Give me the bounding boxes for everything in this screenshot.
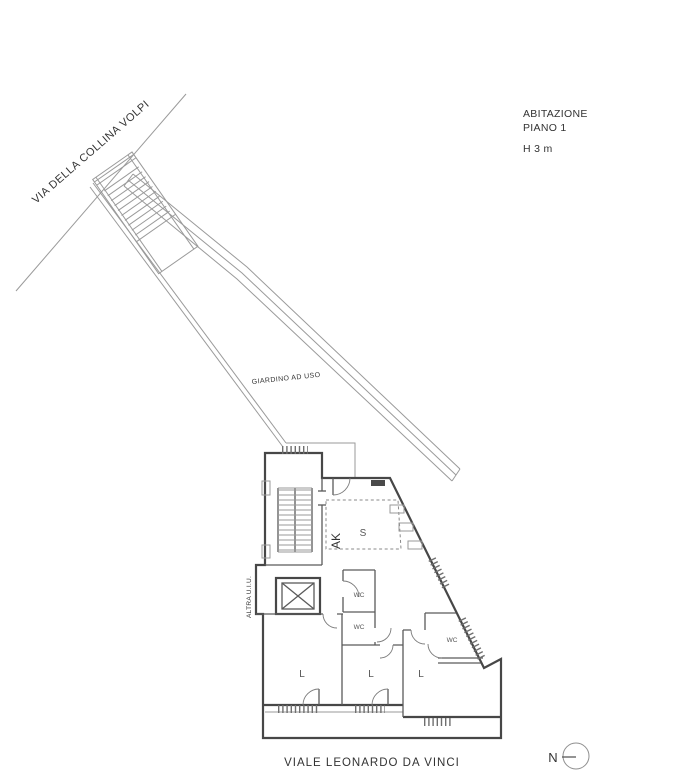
north-label: N (548, 750, 557, 765)
north-circle-icon (563, 743, 589, 769)
elevator-shaft (276, 578, 320, 614)
north-indicator: N (548, 743, 589, 769)
wc-label-1: WC (354, 592, 365, 599)
kitchenette-label: AK (329, 533, 343, 549)
balcony-door-arc (303, 689, 319, 705)
street-label-top: VIA DELLA COLLINA VOLPI (30, 98, 152, 206)
wc-label-3: WC (447, 637, 458, 644)
floor-plan-sheet: VIA DELLA COLLINA VOLPI (0, 0, 677, 780)
garden-fence-left (90, 187, 283, 447)
floor-label: PIANO 1 (523, 122, 567, 134)
bedroom-label-2: L (368, 669, 374, 680)
balcony-door-arc (372, 689, 388, 705)
living-room-label: S (360, 528, 367, 539)
garden-fence-right (124, 186, 452, 481)
plan-annotations: ABITAZIONE PIANO 1 H 3 m (523, 108, 588, 155)
building-plan: S AK WC WC WC L L L ALTRA U.I.U. (246, 450, 501, 738)
garden-area: GIARDINO AD USO (90, 174, 460, 481)
staircase (262, 450, 326, 565)
garden-label: GIARDINO AD USO (251, 372, 321, 386)
adjacent-unit-label: ALTRA U.I.U. (246, 576, 253, 618)
plan-title: ABITAZIONE (523, 108, 588, 120)
bedroom-label-1: L (299, 669, 305, 680)
floor-plan-canvas: VIA DELLA COLLINA VOLPI (0, 0, 677, 780)
entrance-stairs (93, 152, 198, 274)
wc-label-2: WC (354, 624, 365, 631)
entry-door-arc (333, 478, 350, 495)
window-marker (371, 480, 385, 486)
height-label: H 3 m (523, 143, 553, 155)
building-outline (256, 453, 501, 738)
street-label-bottom: VIALE LEONARDO DA VINCI (284, 757, 460, 769)
bedroom-label-3: L (418, 669, 424, 680)
